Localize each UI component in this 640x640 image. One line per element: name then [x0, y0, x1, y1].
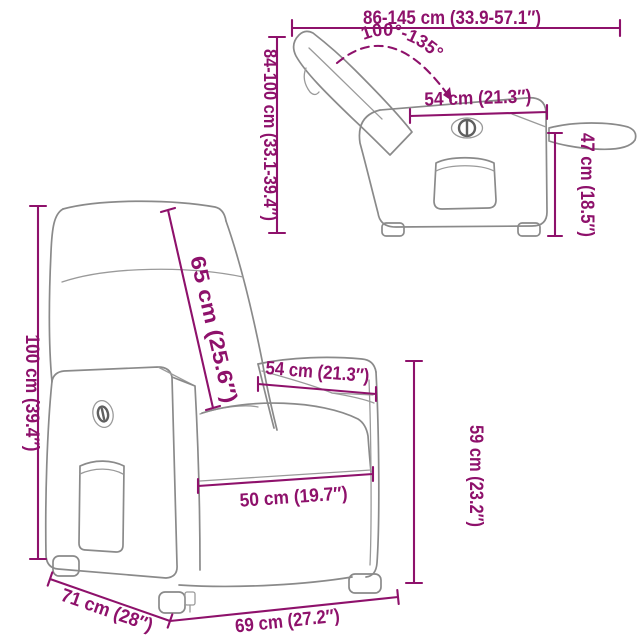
dim-armrest-height-label: 59 cm (23.2″)	[465, 425, 486, 527]
dimension-labels: 86-145 cm (33.9-57.1″) 84-100 cm (33.1-3…	[21, 8, 597, 637]
dim-total-height-label: 100 cm (39.4″)	[21, 335, 42, 452]
diagram-canvas: 86-145 cm (33.9-57.1″) 84-100 cm (33.1-3…	[0, 0, 640, 640]
dim-seat-width-top-label: 54 cm (21.3″)	[265, 358, 370, 387]
dim-depth-label: 71 cm (28″)	[58, 585, 156, 637]
dimension-lines	[30, 20, 620, 628]
dim-footrest-height-label: 47 cm (18.5″)	[576, 133, 597, 237]
dim-seat-width-front-label: 50 cm (19.7″)	[239, 483, 348, 511]
dimension-diagram: 86-145 cm (33.9-57.1″) 84-100 cm (33.1-3…	[0, 0, 640, 640]
dim-backrest-length-label: 65 cm (25.6″)	[185, 254, 241, 405]
dim-height-range-label: 84-100 cm (33.1-39.4″)	[260, 49, 280, 221]
dim-width-label: 69 cm (27.2″)	[234, 606, 341, 638]
dim-seat-depth-label: 54 cm (21.3″)	[424, 86, 532, 110]
